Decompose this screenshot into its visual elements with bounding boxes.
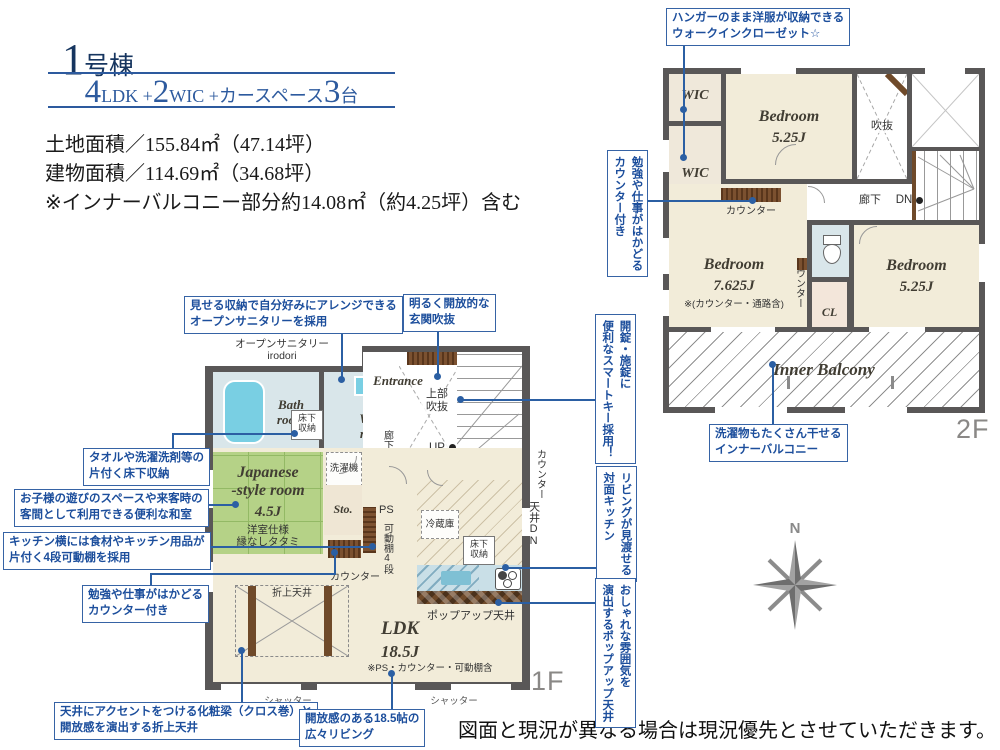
upper-void-label: 上部 吹抜 bbox=[421, 388, 453, 413]
bedroom3-size: 5.25J bbox=[854, 279, 979, 296]
stairwell-cross-icon bbox=[912, 74, 979, 147]
coffered-ceiling: 折上天井 bbox=[235, 585, 349, 657]
callout-floor-storage: タオルや洗濯洗剤等の 片付く床下収納 bbox=[83, 448, 210, 486]
bedroom2-size: 7.625J bbox=[669, 278, 799, 295]
leader-dot bbox=[434, 373, 441, 380]
void-label: 吹抜 bbox=[857, 120, 907, 133]
coffered-ceiling-label: 折上天井 bbox=[260, 588, 324, 600]
balcony-tick bbox=[787, 376, 790, 389]
bedroom2-name: Bedroom bbox=[669, 256, 799, 274]
stairwell-opening-2f bbox=[912, 74, 979, 147]
callout-balcony: 洗濯物もたくさん干せる インナーバルコニー bbox=[709, 424, 848, 462]
leader-dot bbox=[495, 599, 502, 606]
stove-icon bbox=[495, 568, 521, 590]
japanese-room-name: Japanese -style room bbox=[213, 464, 323, 501]
counter-side bbox=[797, 258, 807, 270]
leader-dot bbox=[749, 197, 756, 204]
popup-ceiling-label: ポップアップ天井 bbox=[420, 610, 522, 623]
dn-label: DN bbox=[890, 194, 918, 207]
leader-line bbox=[150, 573, 336, 575]
storage-2: Sto. bbox=[324, 485, 362, 535]
leader-line bbox=[461, 399, 595, 401]
subtitle-num-ldk: 4 bbox=[85, 74, 102, 110]
leader-line bbox=[241, 650, 243, 703]
leader-line bbox=[192, 546, 373, 548]
window bbox=[741, 68, 796, 74]
compass-rose-icon bbox=[745, 538, 845, 633]
wic-lower-label: WIC bbox=[669, 166, 721, 182]
inner-balcony-label: Inner Balcony bbox=[669, 360, 979, 380]
layout-subtitle: 4LDK +2WIC +カースペース3台 bbox=[48, 76, 395, 109]
window bbox=[715, 407, 787, 413]
entrance-label: Entrance bbox=[367, 374, 429, 389]
ceiling-beam bbox=[248, 586, 256, 656]
leader-line bbox=[506, 567, 596, 569]
entrance-mat bbox=[407, 352, 457, 365]
room-japanese: Japanese -style room 4.5J 洋室仕様 縁なしタタミ bbox=[213, 452, 323, 554]
wc-counter-label: カウンター bbox=[534, 446, 546, 502]
stairs-1f bbox=[457, 352, 522, 462]
shelf-label: 可動棚4段 bbox=[381, 520, 393, 576]
callout-genkan: 明るく開放的な 玄関吹抜 bbox=[403, 294, 496, 332]
closet-2f-label: CL bbox=[814, 306, 845, 320]
floor2-label: 2F bbox=[956, 414, 990, 445]
ceiling-dn-label: 天井DN bbox=[527, 498, 540, 550]
window bbox=[925, 68, 965, 74]
ldk-size: 18.5J bbox=[365, 642, 435, 662]
callout-popup: おしゃれな雰囲気を 演出するポップアップ天井 bbox=[595, 578, 636, 728]
leader-line bbox=[437, 330, 439, 376]
corridor-1f-label: 廊下 bbox=[381, 430, 393, 450]
leader-line bbox=[341, 333, 343, 379]
subtitle-num-car: 3 bbox=[324, 74, 341, 110]
sink-icon bbox=[441, 571, 471, 585]
floorplan-sheet: 1号棟 4LDK +2WIC +カースペース3台 土地面積／155.84㎡（47… bbox=[0, 0, 1000, 750]
leader-dot bbox=[457, 396, 464, 403]
window bbox=[221, 684, 301, 690]
ceiling-beam bbox=[324, 586, 332, 656]
compass-n-label: N bbox=[745, 520, 845, 537]
leader-line bbox=[683, 45, 685, 158]
leader-dot bbox=[680, 154, 687, 161]
window bbox=[663, 140, 669, 172]
ldk-note: ※PS・カウンター・可動棚含 bbox=[335, 664, 525, 675]
bedroom1-name: Bedroom bbox=[726, 108, 852, 126]
window bbox=[317, 684, 415, 690]
leader-dot bbox=[769, 361, 776, 368]
room-bedroom-2: カウンター Bedroom 7.625J ※(カウンター・通路含) カウンター bbox=[669, 184, 807, 327]
japanese-room-note: 洋室仕様 縁なしタタミ bbox=[213, 524, 323, 548]
inner-balcony: Inner Balcony bbox=[669, 332, 979, 407]
leader-dot bbox=[502, 564, 509, 571]
callout-kitchen-face: リビングが見渡せる 対面キッチン bbox=[596, 466, 637, 582]
leader-dot bbox=[369, 543, 376, 550]
leader-dot bbox=[680, 106, 687, 113]
area-info: 土地面積／155.84㎡（47.14坪） 建物面積／114.69㎡（34.68坪… bbox=[45, 131, 521, 217]
balcony-tick bbox=[891, 376, 894, 389]
callout-sanitary: 見せる収納で自分好みにアレンジできる オープンサニタリーを採用 bbox=[184, 296, 403, 334]
storage-2-label: Sto. bbox=[324, 503, 362, 517]
stairs-2f-fan-icon bbox=[912, 151, 979, 220]
leader-dot bbox=[388, 670, 395, 677]
disclaimer-text: 図面と現況が異なる場合は現況優先とさせていただきます。 bbox=[458, 714, 996, 743]
room-void: 吹抜 bbox=[857, 74, 907, 179]
leader-line bbox=[172, 433, 174, 449]
leader-dot bbox=[291, 430, 298, 437]
window bbox=[711, 327, 775, 332]
floor-storage-kitchen: 床下 収納 bbox=[463, 536, 495, 565]
room-closet-2f: CL bbox=[812, 282, 847, 327]
floor1-label: 1F bbox=[531, 666, 565, 697]
leader-dot bbox=[232, 501, 239, 508]
window bbox=[979, 244, 985, 282]
floor1-plan: Bath room Wash room 床下 収納 Entrance 上部 吹抜… bbox=[205, 346, 530, 690]
stairs-2f bbox=[912, 151, 979, 220]
ldk-name: LDK bbox=[365, 618, 435, 640]
callout-smartkey: 開錠・施錠に 便利なスマートキー採用！ bbox=[595, 314, 636, 464]
window bbox=[663, 290, 669, 316]
leader-dot bbox=[331, 549, 338, 556]
japanese-room-size: 4.5J bbox=[213, 504, 323, 521]
fridge-space: 冷蔵庫 bbox=[421, 510, 459, 539]
floor2-plan: WIC WIC Bedroom 5.25J 吹抜 bbox=[663, 68, 985, 413]
subtitle-unit-ldk: LDK + bbox=[101, 86, 153, 106]
window bbox=[451, 684, 511, 690]
bedroom3-name: Bedroom bbox=[854, 257, 979, 275]
callout-study-2f: 勉強や仕事がはかどる カウンター付き bbox=[607, 150, 648, 277]
window bbox=[869, 327, 925, 332]
wic-upper-label: WIC bbox=[669, 88, 721, 104]
callout-beam: 天井にアクセントをつける化粧梁（クロス巻）と 開放感を演出する折上天井 bbox=[54, 702, 318, 740]
window bbox=[845, 407, 907, 413]
leader-dot bbox=[238, 647, 245, 654]
callout-study-1f: 勉強や仕事がはかどる カウンター付き bbox=[82, 585, 209, 623]
title-rule-bottom bbox=[48, 106, 395, 108]
toilet-icon-2f bbox=[820, 235, 842, 265]
callout-living: 開放感のある18.5帖の 広々リビング bbox=[299, 709, 425, 747]
open-sanitary-label: オープンサニタリー irodori bbox=[230, 338, 334, 362]
dn-marker bbox=[916, 197, 923, 204]
callout-wic: ハンガーのまま洋服が収納できる ウォークインクローゼット☆ bbox=[666, 8, 850, 46]
leader-line bbox=[499, 602, 595, 604]
callout-washitsu: お子様の遊びのスペースや来客時の 客間として利用できる便利な和室 bbox=[14, 489, 209, 527]
subtitle-unit-car: 台 bbox=[340, 86, 358, 106]
subtitle-unit-wic: WIC +カースペース bbox=[169, 86, 324, 106]
leader-line bbox=[772, 364, 774, 424]
leader-line bbox=[172, 433, 294, 435]
corridor-2f-label: 廊下 bbox=[850, 194, 890, 207]
shutter-label-2: シャッター bbox=[424, 697, 484, 708]
subtitle-num-wic: 2 bbox=[153, 74, 170, 110]
stairs-1f-fan-icon bbox=[457, 352, 522, 462]
window bbox=[663, 238, 669, 274]
bedroom2-note: ※(カウンター・通路含) bbox=[669, 300, 799, 311]
ps-label: PS bbox=[379, 504, 403, 517]
leader-line bbox=[643, 200, 753, 202]
leader-line bbox=[391, 673, 393, 710]
room-wic-upper: WIC bbox=[669, 74, 721, 121]
toilet-room-2f bbox=[812, 225, 849, 277]
leader-dot bbox=[338, 376, 345, 383]
callout-shelf: キッチン横には食材やキッチン用品が 片付く4段可動棚を採用 bbox=[3, 532, 211, 570]
counter-2f-label: カウンター bbox=[711, 206, 791, 218]
